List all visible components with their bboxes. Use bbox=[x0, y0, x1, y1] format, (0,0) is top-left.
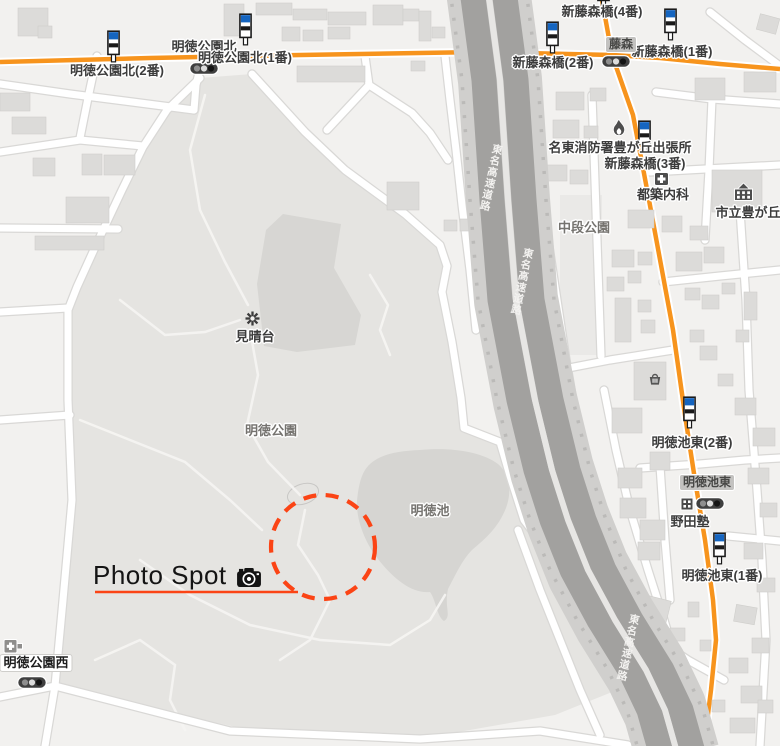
traffic-light-icon bbox=[17, 676, 47, 689]
highway-label: 東名高速道路 bbox=[614, 613, 640, 683]
highway-label: 東名高速道路 bbox=[508, 247, 534, 317]
bus-stop-label: 新藤森橋(4番) bbox=[562, 5, 643, 19]
poi-label: 名東消防署豊が丘出張所 bbox=[548, 141, 691, 155]
traffic-light-icon bbox=[695, 497, 725, 510]
photo-spot-label-group: Photo Spot bbox=[93, 560, 262, 591]
bus-stop-icon bbox=[546, 21, 559, 55]
viewpoint-icon bbox=[244, 310, 261, 327]
store-icon bbox=[648, 372, 662, 386]
map-label-layer: 明徳公園北(2番)明徳公園北明徳公園北(1番)新藤森橋(4番)新藤森橋(2番)新… bbox=[0, 0, 780, 746]
bus-stop-label: 明徳公園北(2番) bbox=[70, 64, 164, 78]
poi-label: 明徳池 bbox=[410, 504, 449, 518]
bus-stop-label: 明徳公園北(1番) bbox=[198, 51, 292, 65]
photo-spot-label: Photo Spot bbox=[93, 560, 227, 591]
bus-stop-label: 新藤森橋(3番) bbox=[605, 157, 686, 171]
bus-stop-label: 新藤森橋(1番) bbox=[632, 45, 713, 59]
bus-stop-icon bbox=[664, 8, 677, 42]
camera-icon bbox=[236, 567, 262, 588]
bus-stop-label: 明徳池東(2番) bbox=[652, 436, 733, 450]
bus-stop-icon bbox=[683, 396, 696, 430]
poi-label: 明徳公園 bbox=[245, 424, 297, 438]
building-icon bbox=[680, 497, 694, 511]
bus-stop-label: 新藤森橋(2番) bbox=[513, 56, 594, 70]
intersection-label: 藤森 bbox=[606, 37, 636, 52]
hospital-icon bbox=[3, 637, 23, 654]
poi-label: 野田塾 bbox=[670, 515, 709, 529]
bus-stop-icon bbox=[239, 13, 252, 47]
intersection-label: 明徳公園西 bbox=[0, 655, 71, 671]
school-icon bbox=[733, 182, 754, 202]
poi-label: 都築内科 bbox=[637, 188, 689, 202]
fire-icon bbox=[611, 119, 627, 138]
bus-stop-icon bbox=[713, 532, 726, 566]
bus-stop-label: 明徳池東(1番) bbox=[682, 569, 763, 583]
highway-label: 東名高速道路 bbox=[477, 143, 503, 213]
poi-label: 中段公園 bbox=[558, 221, 610, 235]
bus-stop-icon bbox=[107, 30, 120, 64]
traffic-light-icon bbox=[601, 55, 631, 68]
poi-label: 市立豊が丘 bbox=[715, 206, 780, 220]
map-canvas[interactable]: 明徳公園北(2番)明徳公園北明徳公園北(1番)新藤森橋(4番)新藤森橋(2番)新… bbox=[0, 0, 780, 746]
poi-label: 見晴台 bbox=[235, 330, 274, 344]
clinic-icon bbox=[654, 172, 669, 186]
intersection-label: 明徳池東 bbox=[680, 475, 734, 490]
